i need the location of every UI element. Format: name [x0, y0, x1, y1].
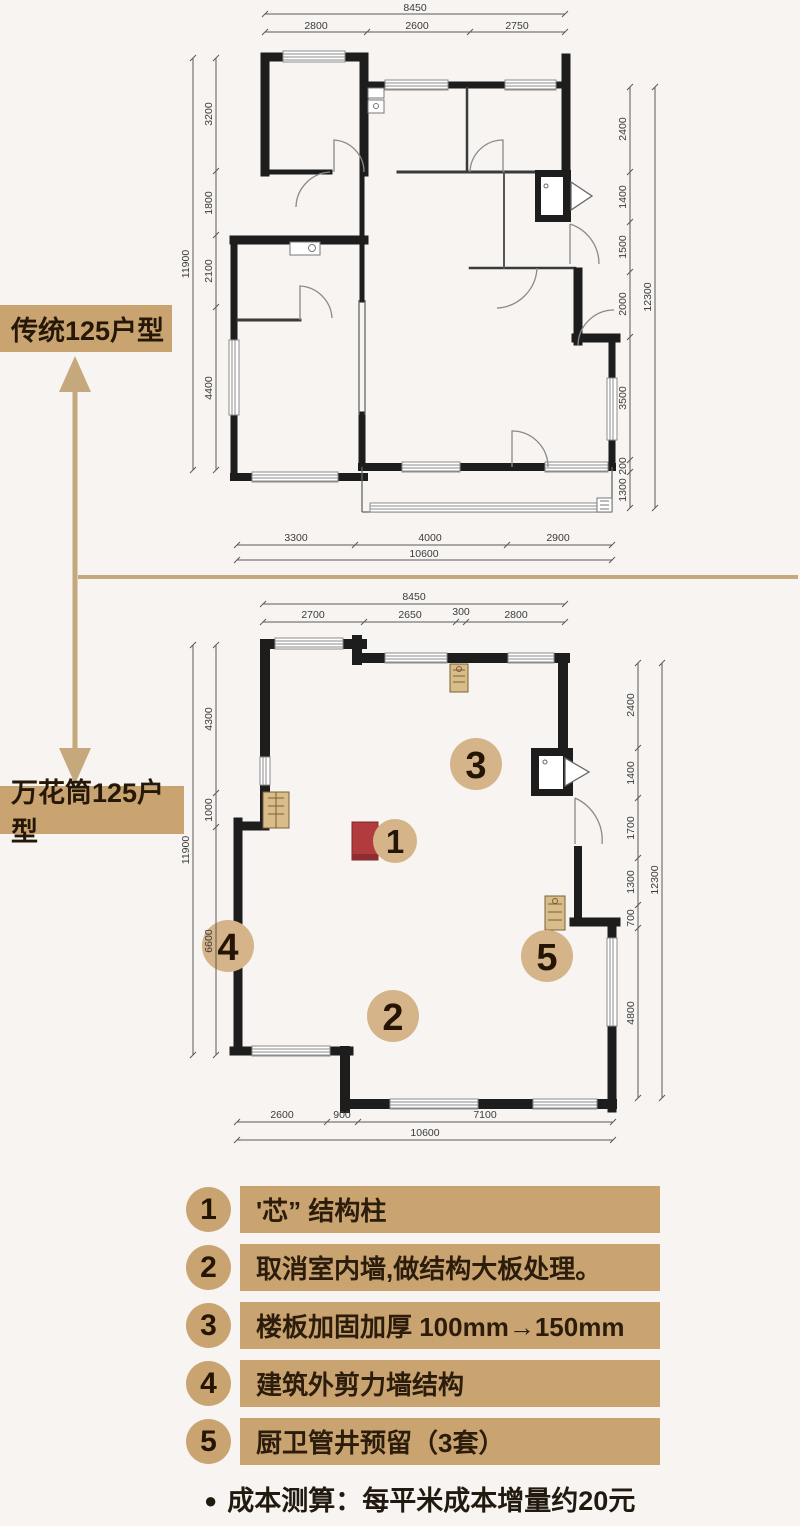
dim-label: 2900 — [546, 532, 570, 544]
legend-item-1: '芯” 结构柱 — [240, 1186, 660, 1233]
dim-label: 300 — [452, 606, 470, 618]
legend-text-4: 建筑外剪力墙结构 — [256, 1365, 464, 1402]
dim-label: 2750 — [505, 20, 529, 32]
bottom-floor-plan: 1 2 3 4 5 — [180, 591, 665, 1143]
arrow-up-icon — [59, 356, 91, 392]
dim-label: 2700 — [301, 609, 325, 621]
dim-label: 4800 — [625, 1001, 637, 1025]
dim-label: 2100 — [203, 259, 215, 283]
dim-label: 2650 — [398, 609, 422, 621]
dim-label: 2000 — [617, 292, 629, 316]
marker-5: 5 — [536, 937, 557, 979]
dim-label: 2800 — [304, 20, 328, 32]
legend-item-4: 建筑外剪力墙结构 — [240, 1360, 660, 1407]
legend-text-5: 厨卫管井预留（3套） — [256, 1423, 504, 1460]
marker-2: 2 — [382, 997, 403, 1039]
dim-label: 10600 — [409, 548, 438, 560]
dim-label: 3500 — [617, 386, 629, 410]
marker-4: 4 — [217, 927, 238, 969]
dim-label: 8450 — [402, 591, 426, 603]
dim-label: 4300 — [203, 707, 215, 731]
top-floor-plan: 8450 2800 2600 2750 11900 3200 1800 2100… — [180, 2, 658, 563]
label-kaleidoscope-plan: 万花筒125户型 — [0, 786, 184, 834]
infographic-page: 8450 2800 2600 2750 11900 3200 1800 2100… — [0, 0, 800, 1526]
dim-label: 4000 — [418, 532, 442, 544]
dim-label: 1500 — [617, 235, 629, 259]
top-plan-windows — [229, 51, 617, 512]
bottom-plan-fixtures — [263, 664, 565, 930]
legend-item-2: 取消室内墙,做结构大板处理。 — [240, 1244, 660, 1291]
dim-label: 1400 — [625, 761, 637, 785]
dim-label: 1000 — [203, 798, 215, 822]
legend-text-2: 取消室内墙,做结构大板处理。 — [256, 1249, 601, 1286]
legend-item-5: 厨卫管井预留（3套） — [240, 1418, 660, 1465]
dim-label: 1400 — [617, 185, 629, 209]
dim-label: 12300 — [642, 282, 654, 311]
dim-label: 8450 — [403, 2, 427, 14]
dim-label: 11900 — [180, 250, 192, 279]
marker-1: 1 — [386, 823, 404, 860]
dim-label: 1300 — [625, 870, 637, 894]
dim-label: 1800 — [203, 191, 215, 215]
dim-label: 2600 — [270, 1109, 294, 1121]
dim-label: 1300 — [617, 478, 629, 502]
floor-plans-canvas: 8450 2800 2600 2750 11900 3200 1800 2100… — [0, 0, 800, 1526]
connector-arrow — [59, 356, 798, 784]
dim-label: 700 — [625, 909, 637, 927]
dim-label: 1700 — [625, 816, 637, 840]
top-plan-walls — [234, 57, 616, 477]
dim-label: 12300 — [649, 865, 661, 894]
dim-label: 200 — [617, 457, 629, 475]
dim-label: 2600 — [405, 20, 429, 32]
dim-label: 2800 — [504, 609, 528, 621]
label-traditional-plan: 传统125户型 — [0, 305, 172, 352]
legend-num-1: 1 — [186, 1187, 231, 1232]
dim-label: 2400 — [617, 117, 629, 141]
dim-label: 7100 — [473, 1109, 497, 1121]
bottom-plan-shaft — [531, 748, 589, 796]
bottom-plan-walls — [234, 640, 616, 1108]
dim-label: 900 — [333, 1109, 351, 1121]
marker-3: 3 — [465, 745, 486, 787]
bottom-plan-dim-labels: 8450 2700 2650 300 2800 11900 4300 1000 … — [180, 591, 661, 1139]
cost-footnote-text: 成本测算：每平米成本增量约20元 — [227, 1486, 635, 1516]
legend-text-1: '芯” 结构柱 — [256, 1191, 386, 1228]
legend-item-3: 楼板加固加厚 100mm→150mm — [240, 1302, 660, 1349]
legend-num-3: 3 — [186, 1303, 231, 1348]
dim-label: 3200 — [203, 102, 215, 126]
cost-footnote: ●成本测算：每平米成本增量约20元 — [204, 1479, 635, 1518]
top-plan-shaft — [535, 170, 592, 222]
legend-num-4: 4 — [186, 1361, 231, 1406]
dim-label: 10600 — [410, 1127, 439, 1139]
legend-num-2: 2 — [186, 1245, 231, 1290]
dim-label: 3300 — [284, 532, 308, 544]
legend-text-3: 楼板加固加厚 100mm→150mm — [256, 1307, 624, 1344]
dim-label: 2400 — [625, 693, 637, 717]
dim-label: 6600 — [203, 929, 215, 953]
bottom-plan-door-arc — [575, 798, 602, 844]
bullet-icon: ● — [204, 1488, 217, 1513]
dim-label: 4400 — [203, 376, 215, 400]
plan-markers: 1 2 3 4 5 — [202, 738, 573, 1042]
legend-num-5: 5 — [186, 1419, 231, 1464]
